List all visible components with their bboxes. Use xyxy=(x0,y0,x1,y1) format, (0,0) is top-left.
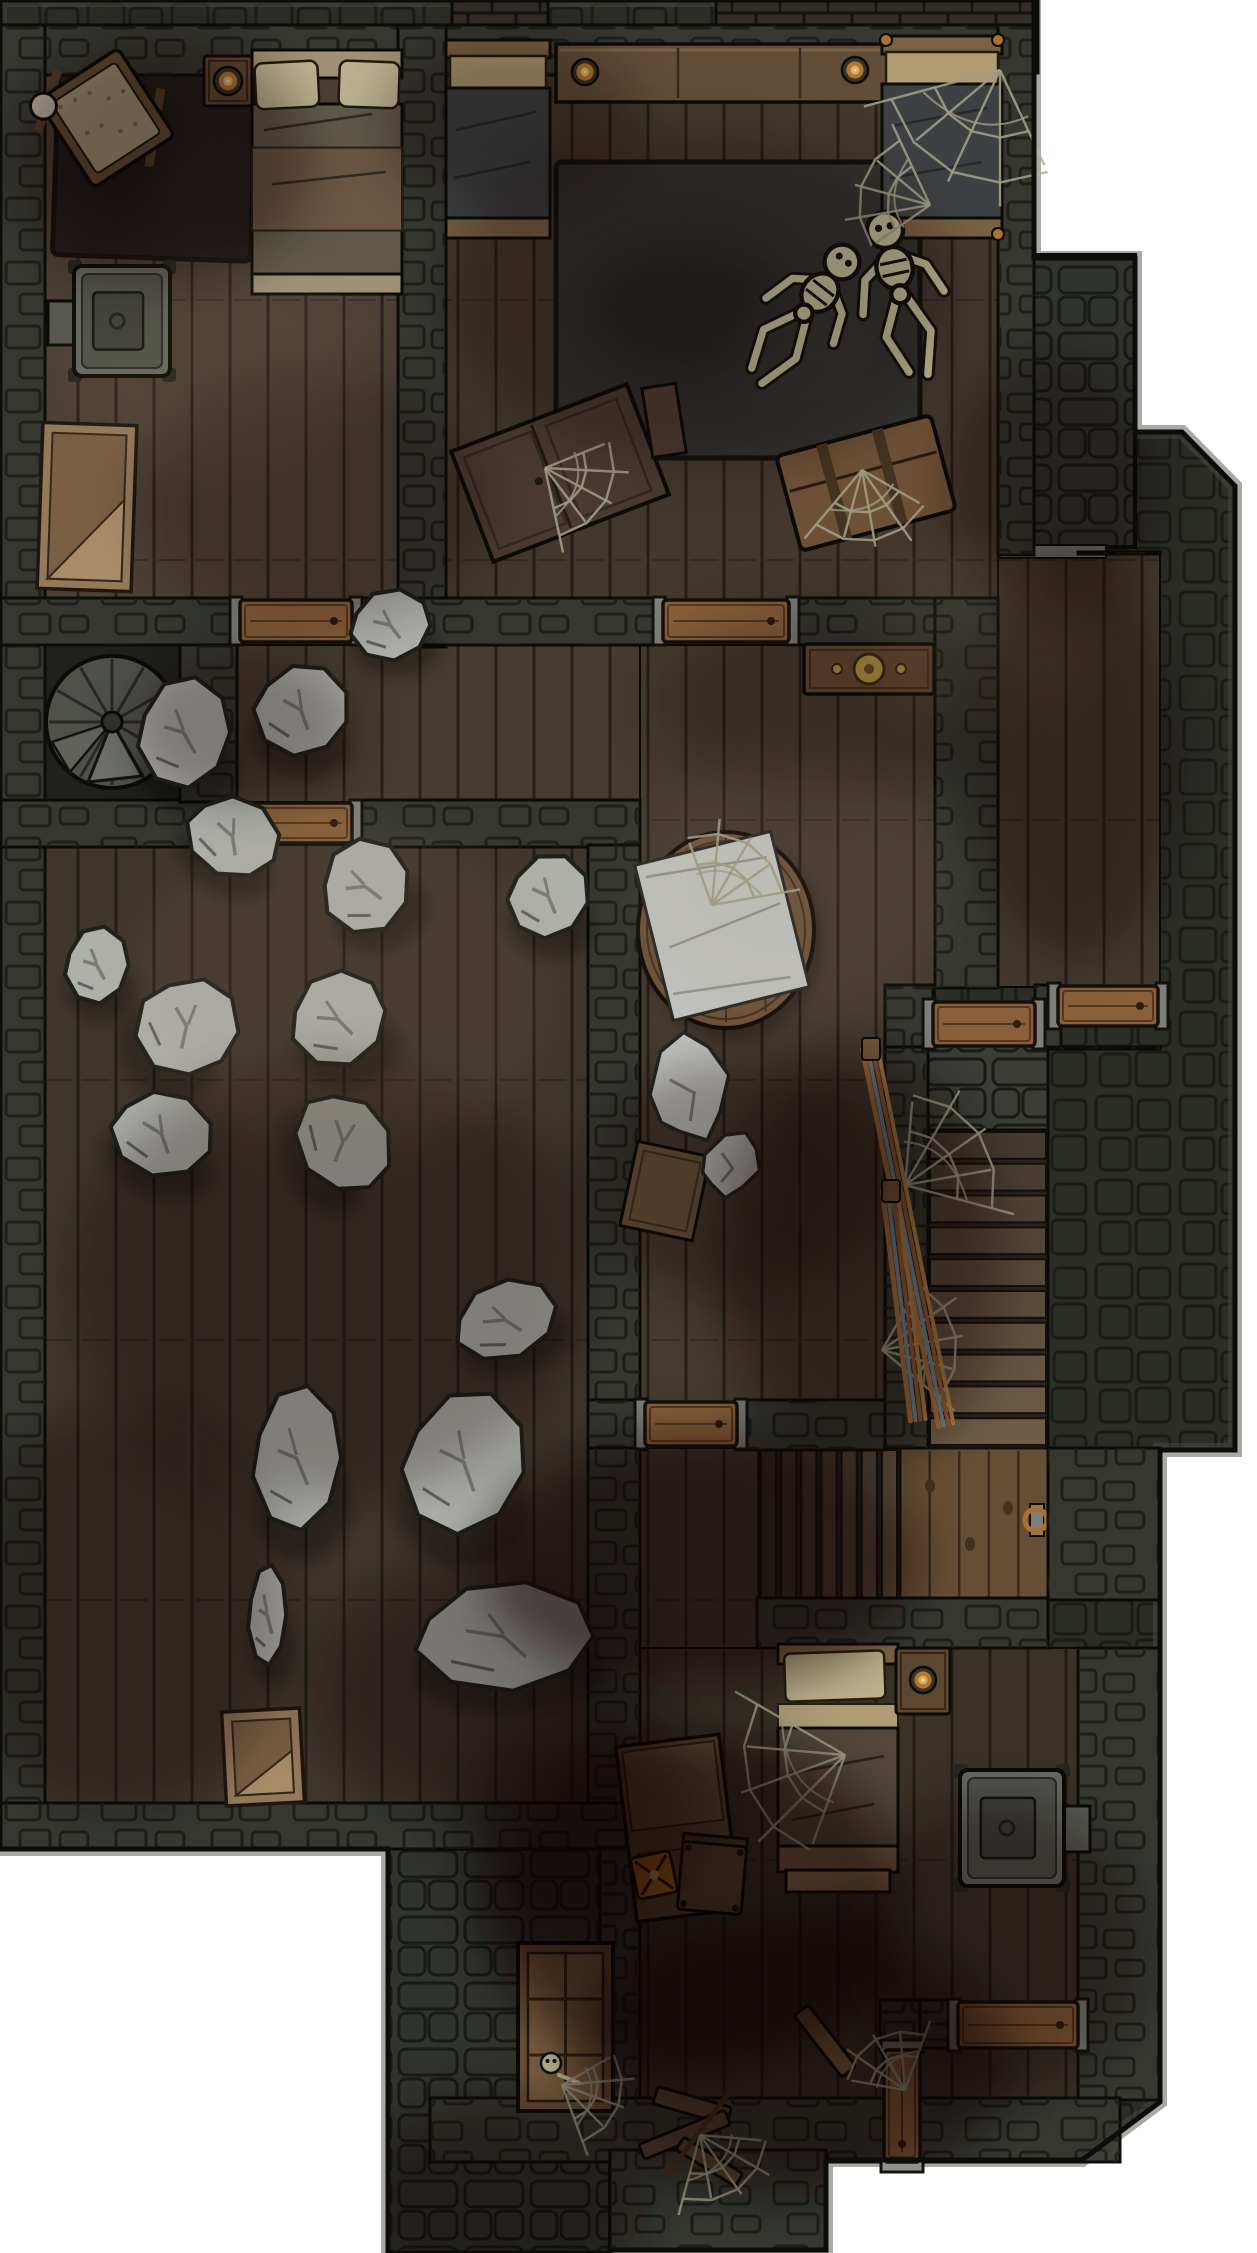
layer-fx xyxy=(0,0,1257,2253)
map-canvas xyxy=(0,0,1257,2253)
dim-overlay xyxy=(0,0,1257,2253)
battle-map xyxy=(0,0,1257,2253)
